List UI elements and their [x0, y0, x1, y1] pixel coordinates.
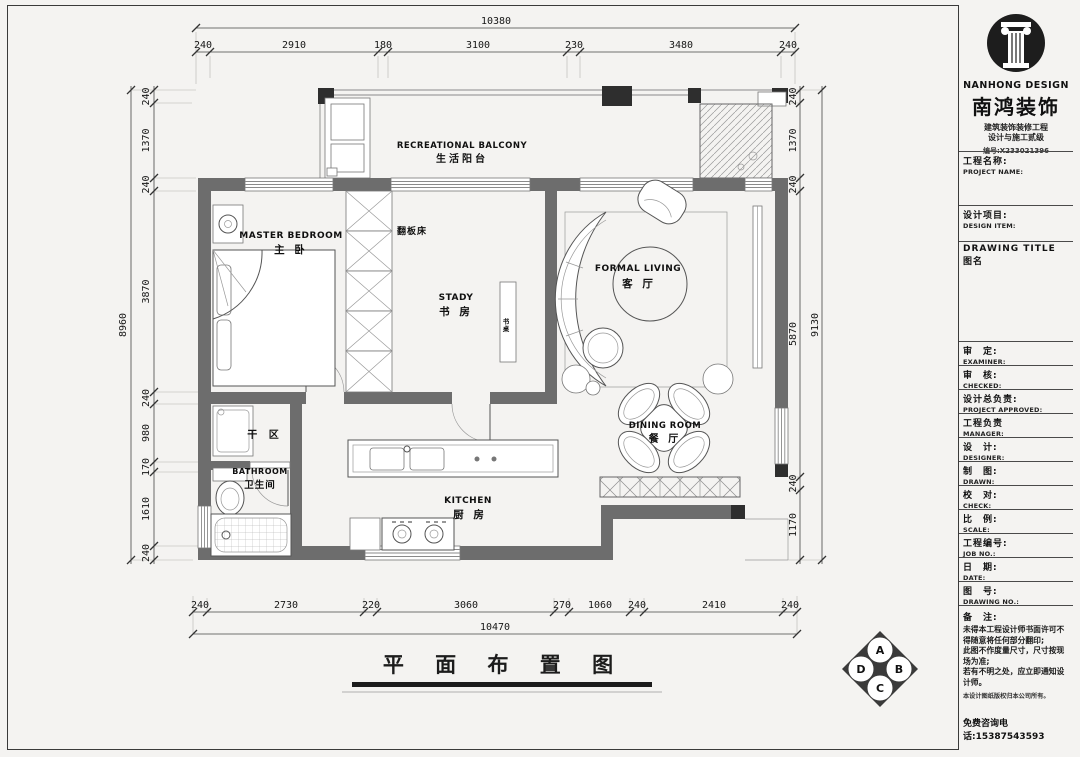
dim-label: 1170 [788, 513, 799, 537]
laundry-cabinet [325, 98, 370, 178]
study-furniture: 书桌 翻板床 STADY 书 房 [397, 225, 516, 362]
window [198, 506, 211, 548]
field-label-en: PROJECT NAME: [963, 168, 1069, 176]
company-logo-icon [985, 12, 1047, 74]
dim-label: 240 [191, 600, 209, 611]
field-label-en: SCALE: [963, 526, 1069, 533]
field-label-cn: 比 例: [963, 512, 1069, 525]
dim-label: 1060 [588, 600, 612, 611]
field-label-en: DESIGNER: [963, 454, 1069, 461]
compass-c: C [876, 682, 884, 695]
field-label-cn: 审 核: [963, 368, 1069, 381]
label-bathroom-en: BATHROOM [232, 467, 288, 476]
dim-right-total: 9130 [810, 313, 821, 337]
label-living-en: FORMAL LIVING [595, 264, 681, 274]
compass: A B C D [842, 631, 918, 707]
label-master-en: MASTER BEDROOM [239, 231, 342, 241]
field-label-cn: 工程负责 [963, 416, 1069, 429]
drawing-sheet: 10380 240 2910 180 3100 230 3480 240 240… [0, 0, 1080, 757]
brand-cert: 建筑装饰装修工程 设计与施工贰级 [959, 123, 1073, 144]
window [580, 178, 693, 191]
brand-name-cn: 南鸿装饰 [959, 91, 1073, 120]
dim-label: 240 [628, 600, 646, 611]
field-label-cn: 审 定: [963, 344, 1069, 357]
field-project-name: 工程名称: PROJECT NAME: [959, 151, 1073, 205]
dim-label: 2410 [702, 600, 726, 611]
note-line: 此图不作度量尺寸，尺寸按现场为准; [963, 646, 1069, 667]
column [602, 86, 632, 106]
dim-label: 3060 [454, 600, 478, 611]
dim-label: 240 [141, 87, 152, 105]
field-date: 日 期: DATE: [959, 557, 1073, 581]
field-label-en: CHECK: [963, 502, 1069, 509]
field-drawn: 制 图: DRAWN: [959, 461, 1073, 485]
notes-label: 备 注: [963, 610, 1069, 623]
label-kitchen-en: KITCHEN [444, 496, 492, 506]
dimension-lines-bottom: 240 2730 220 3060 270 1060 240 2410 240 … [189, 596, 801, 638]
field-label-en: MANAGER: [963, 430, 1069, 437]
dim-label: 180 [374, 40, 392, 51]
dim-label: 230 [565, 40, 583, 51]
dim-label: 240 [781, 600, 799, 611]
compass-b: B [895, 663, 903, 676]
notes-block: 备 注: 未得本工程设计师书面许可不得随意将任何部分翻印; 此图不作度量尺寸，尺… [959, 605, 1073, 750]
label-study-en: STADY [439, 293, 474, 303]
field-project-approved: 设计总负责: PROJECT APPROVED: [959, 389, 1073, 413]
sink [370, 448, 404, 470]
dim-label: 240 [194, 40, 212, 51]
pillow [217, 320, 231, 370]
dim-label: 1370 [788, 128, 799, 152]
field-design-item: 设计项目: DESIGN ITEM: [959, 205, 1073, 241]
drawing-title: 平 面 布 置 图 [342, 653, 662, 692]
label-living-cn: 客 厅 [621, 277, 656, 290]
dim-left-total: 8960 [118, 313, 129, 337]
label-dining-cn: 餐 厅 [648, 432, 681, 445]
field-drawing-no: 图 号: DRAWING NO.: [959, 581, 1073, 605]
field-scale: 比 例: SCALE: [959, 509, 1073, 533]
field-label-en: DRAWING NO.: [963, 598, 1069, 605]
dining-furniture: DINING ROOM 餐 厅 [611, 376, 718, 481]
field-label-en: PROJECT APPROVED: [963, 406, 1069, 413]
field-designer: 设 计: DESIGNER: [959, 437, 1073, 461]
dim-label: 240 [788, 175, 799, 193]
note-line: 若有不明之处，应立即通知设计师。 [963, 667, 1069, 688]
dim-label: 3480 [669, 40, 693, 51]
wardrobe [346, 191, 392, 392]
floor-plan-canvas: 10380 240 2910 180 3100 230 3480 240 240… [0, 0, 956, 757]
living-furniture: FORMAL LIVING 客 厅 [555, 175, 762, 395]
compass-d: D [856, 663, 865, 676]
dim-top-total: 10380 [481, 16, 511, 27]
dim-bottom-total: 10470 [480, 622, 510, 633]
kitchen-furniture: KITCHEN 厨 房 [348, 440, 558, 550]
field-label-cn: 工程编号: [963, 536, 1069, 549]
label-desk-cn: 书桌 [501, 317, 509, 334]
label-study-cn: 书 房 [439, 305, 473, 318]
brand-cert-line1: 建筑装饰装修工程 [984, 123, 1048, 132]
label-dry-area-cn: 干 区 [247, 429, 282, 441]
field-label-cn: 设计项目: [963, 208, 1069, 221]
title-block: NANHONG DESIGN 南鸿装饰 建筑装饰装修工程 设计与施工贰级 编号:… [958, 5, 1073, 750]
compass-a: A [876, 644, 885, 657]
label-bathroom-cn: 卫生间 [244, 479, 276, 491]
brand-cert-line2: 设计与施工贰级 [988, 133, 1044, 142]
dimension-lines-left: 240 1370 240 3870 240 980 170 1610 240 8… [118, 86, 198, 564]
field-label-cn: 制 图: [963, 464, 1069, 477]
dimension-lines-right: 240 1370 240 5870 240 1170 9130 [788, 86, 826, 564]
study-door [452, 392, 490, 442]
field-label-en: EXAMINER: [963, 358, 1069, 365]
bathroom-furniture: 干 区 BATHROOM 卫生间 [211, 406, 291, 556]
label-wall-bed-cn: 翻板床 [397, 225, 427, 237]
field-label-cn: 图 号: [963, 584, 1069, 597]
window [775, 408, 788, 464]
company-logo-block: NANHONG DESIGN 南鸿装饰 建筑装饰装修工程 设计与施工贰级 编号:… [959, 5, 1073, 151]
field-label-en: JOB NO.: [963, 550, 1069, 557]
dim-label: 1370 [141, 128, 152, 152]
field-label-en: DESIGN ITEM: [963, 222, 1069, 230]
dim-label: 1610 [141, 497, 152, 521]
dim-label: 240 [788, 87, 799, 105]
field-drawing-title: DRAWING TITLE 图名 [959, 241, 1073, 341]
field-label-en: DRAWN: [963, 478, 1069, 485]
label-dining-en: DINING ROOM [629, 421, 702, 431]
title-underline [352, 682, 652, 687]
field-label-cn: 设 计: [963, 440, 1069, 453]
master-bedroom-furniture: MASTER BEDROOM 主 卧 [213, 205, 343, 386]
field-label-cn: 设计总负责: [963, 392, 1069, 405]
field-label-en: DATE: [963, 574, 1069, 581]
dim-label: 270 [553, 600, 571, 611]
window [745, 178, 772, 191]
window [391, 178, 530, 191]
dim-label: 5870 [788, 322, 799, 346]
sink [410, 448, 444, 470]
brand-name-en: NANHONG DESIGN [959, 80, 1073, 91]
field-label-en: CHECKED: [963, 382, 1069, 389]
dimension-lines-top: 10380 240 2910 180 3100 230 3480 240 [192, 16, 799, 84]
equipment-platform-hatch [700, 104, 772, 178]
field-label-cn: DRAWING TITLE 图名 [963, 244, 1069, 267]
dim-label: 240 [141, 389, 152, 407]
field-label-cn: 日 期: [963, 560, 1069, 573]
dim-label: 3870 [141, 279, 152, 303]
dim-label: 170 [141, 458, 152, 476]
column [688, 88, 701, 103]
dim-label: 2910 [282, 40, 306, 51]
label-master-cn: 主 卧 [274, 243, 308, 256]
base-cabinet [350, 518, 380, 550]
field-manager: 工程负责 MANAGER: [959, 413, 1073, 437]
side-table-small [586, 381, 600, 395]
field-job-no: 工程编号: JOB NO.: [959, 533, 1073, 557]
label-balcony-cn: 生活阳台 [436, 152, 488, 165]
balcony: RECREATIONAL BALCONY 生活阳台 [318, 86, 788, 178]
dim-label: 240 [141, 544, 152, 562]
dim-label: 2730 [274, 600, 298, 611]
dim-label: 220 [362, 600, 380, 611]
label-kitchen-cn: 厨 房 [453, 508, 487, 521]
dim-label: 240 [779, 40, 797, 51]
dim-label: 980 [141, 424, 152, 442]
dim-label: 240 [788, 474, 799, 492]
window [245, 178, 333, 191]
dim-label: 3100 [466, 40, 490, 51]
corner-stool [703, 364, 733, 394]
note-copyright: 本设计图纸版权归本公司所有。 [963, 691, 1069, 700]
field-examiner: 审 定: EXAMINER: [959, 341, 1073, 365]
note-line: 未得本工程设计师书面许可不得随意将任何部分翻印; [963, 625, 1069, 646]
page-title: 平 面 布 置 图 [383, 653, 625, 677]
ottoman [583, 328, 623, 368]
dim-label: 240 [141, 175, 152, 193]
label-balcony-en: RECREATIONAL BALCONY [397, 141, 528, 151]
field-check: 校 对: CHECK: [959, 485, 1073, 509]
hotline-phone: 免费咨询电话:15387543593 [963, 716, 1069, 746]
field-label-cn: 校 对: [963, 488, 1069, 501]
field-checked: 审 核: CHECKED: [959, 365, 1073, 389]
field-label-cn: 工程名称: [963, 154, 1069, 167]
